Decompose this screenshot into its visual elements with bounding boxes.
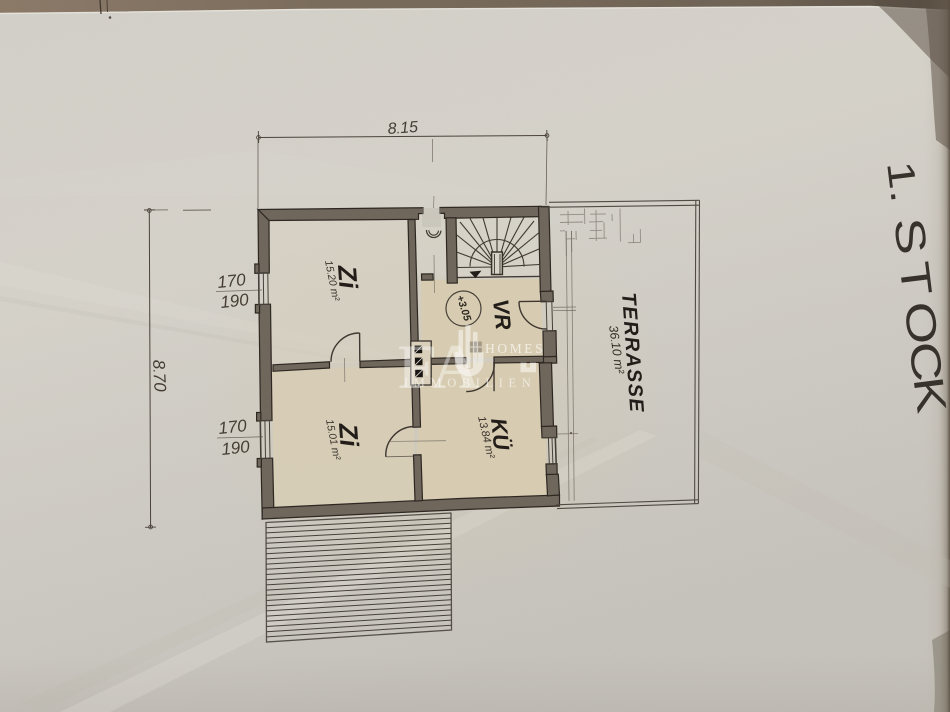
svg-text:HOMES: HOMES [485, 341, 545, 356]
svg-text:T: T [890, 259, 940, 298]
svg-text:VR: VR [488, 298, 516, 331]
svg-text:170: 170 [216, 270, 247, 292]
svg-text:IMMOBILIEN: IMMOBILIEN [404, 376, 536, 390]
svg-text:190: 190 [220, 437, 251, 459]
svg-text:8.15: 8.15 [387, 119, 419, 138]
svg-text:K: K [904, 374, 950, 416]
svg-text:1.: 1. [878, 159, 925, 205]
svg-text:8.70: 8.70 [149, 359, 170, 392]
svg-text:170: 170 [217, 416, 248, 438]
svg-text:190: 190 [219, 290, 250, 312]
svg-text:S: S [885, 215, 936, 257]
